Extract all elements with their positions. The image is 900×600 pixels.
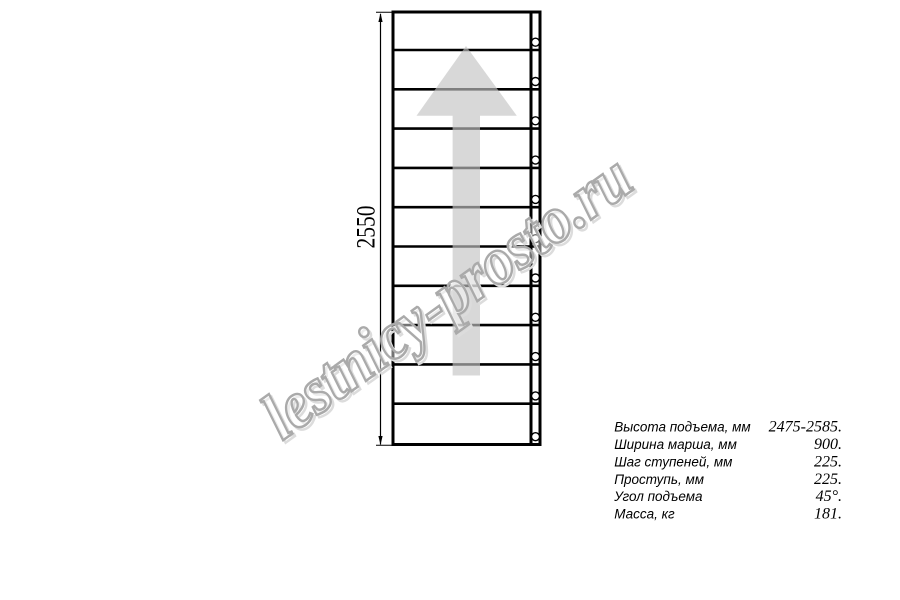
svg-text:2475-2585.: 2475-2585. (769, 419, 842, 436)
svg-text:Проступь, мм: Проступь, мм (614, 472, 704, 487)
svg-text:Высота подъема, мм: Высота подъема, мм (614, 420, 750, 435)
svg-text:225.: 225. (814, 471, 842, 488)
svg-text:181.: 181. (814, 505, 842, 522)
svg-text:Масса, кг: Масса, кг (614, 506, 675, 521)
svg-text:45°.: 45°. (816, 488, 842, 505)
svg-text:Угол подъема: Угол подъема (613, 489, 703, 504)
svg-text:Шаг ступеней, мм: Шаг ступеней, мм (614, 454, 732, 469)
svg-text:2550: 2550 (352, 206, 381, 249)
svg-text:900.: 900. (814, 436, 842, 453)
svg-text:225.: 225. (814, 453, 842, 470)
svg-text:Ширина марша, мм: Ширина марша, мм (614, 437, 737, 452)
